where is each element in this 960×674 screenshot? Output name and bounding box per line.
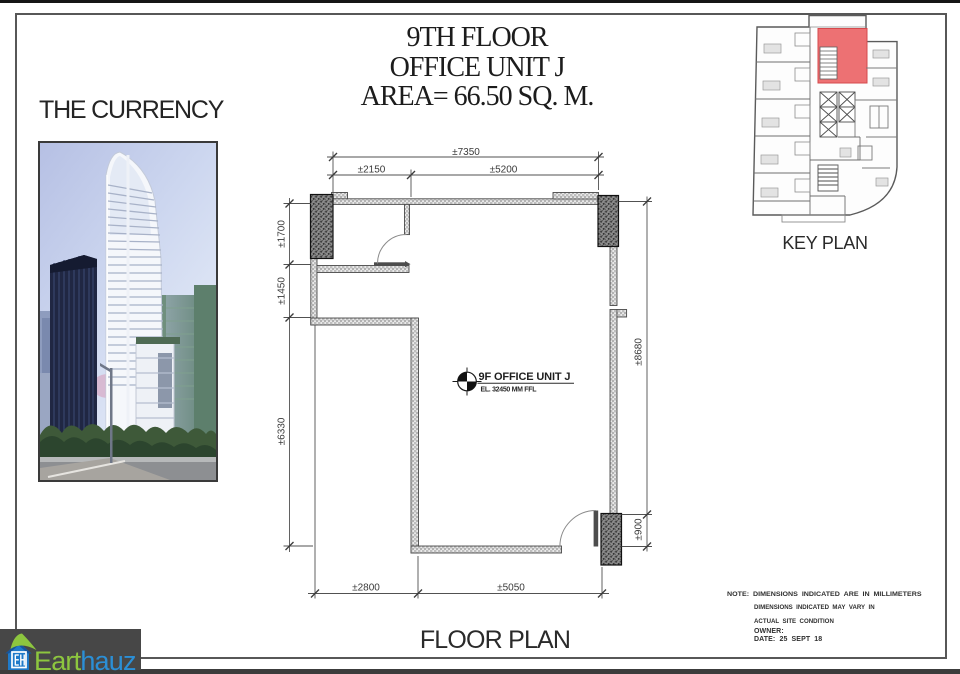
svg-text:EL. 32450 MM FFL: EL. 32450 MM FFL <box>481 387 538 394</box>
svg-text:±2800: ±2800 <box>352 583 380 594</box>
svg-text:±8680: ±8680 <box>634 338 645 366</box>
svg-text:±6330: ±6330 <box>277 417 288 445</box>
svg-text:±5200: ±5200 <box>490 165 518 176</box>
svg-text:9F OFFICE UNIT J: 9F OFFICE UNIT J <box>479 371 571 383</box>
svg-text:±5050: ±5050 <box>497 583 525 594</box>
svg-text:Earthauz: Earthauz <box>34 646 136 674</box>
svg-text:±7350: ±7350 <box>452 147 480 158</box>
svg-text:±900: ±900 <box>634 518 645 541</box>
svg-text:±2150: ±2150 <box>358 165 386 176</box>
svg-text:±1700: ±1700 <box>277 220 288 248</box>
svg-text:±1450: ±1450 <box>277 277 288 305</box>
